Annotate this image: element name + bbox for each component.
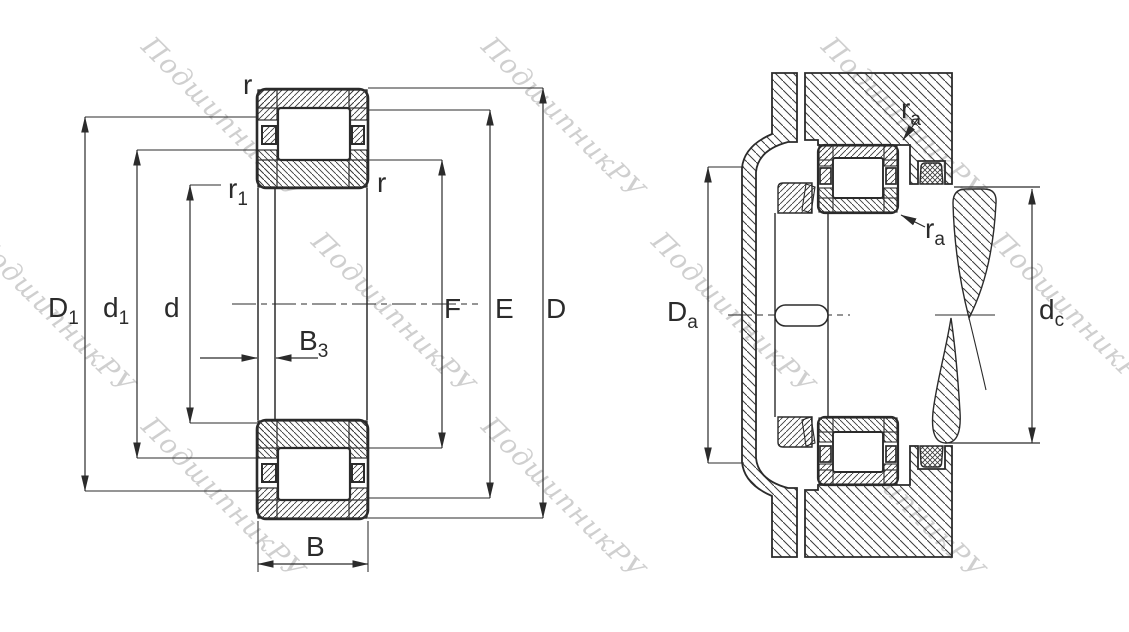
seal-ring-lower — [920, 446, 943, 467]
outer-ring-left-flange — [258, 488, 277, 518]
watermark-text: ПодшипникРУ — [474, 30, 651, 207]
outer-ring-right-flange — [349, 488, 367, 518]
watermark-text: ПодшипникРУ — [474, 410, 651, 587]
label-abutment-Da: Da — [667, 296, 698, 333]
inner-ring-right-flange — [349, 421, 367, 458]
label-diameter-D: D — [546, 293, 566, 324]
label-fillet-ra-bottom: ra — [925, 213, 945, 250]
mounted-bearing-top-section — [818, 145, 898, 213]
inner-ring-left-flange — [258, 421, 277, 458]
inner-ring-left-flange — [258, 150, 277, 187]
seal-ring-upper — [920, 163, 943, 184]
bearing-drawing-svg: ПодшипникРУ ПодшипникРУ ПодшипникРУ Подш… — [0, 0, 1129, 632]
roller — [278, 448, 350, 500]
left-figure-bearing-section: r r1 r D1 d1 d B3 B F E D — [48, 69, 566, 572]
label-width-B: B — [306, 531, 325, 562]
cage-bar-right — [886, 446, 896, 462]
cage-bar-right — [886, 168, 896, 184]
label-bore-d: d — [164, 292, 180, 323]
shaft-break-upper-leaf — [953, 189, 996, 318]
shaft-center-capsule — [775, 305, 828, 326]
technical-drawing-page: ПодшипникРУ ПодшипникРУ ПодшипникРУ Подш… — [0, 0, 1129, 632]
roller — [833, 158, 883, 198]
shaft-break-lower-leaf — [933, 318, 961, 443]
roller — [833, 432, 883, 472]
cage-bar-right — [352, 464, 364, 482]
inner-ring-right-flange — [349, 150, 367, 187]
label-diameter-d1: d1 — [103, 292, 129, 329]
label-diameter-F: F — [444, 293, 461, 324]
leader-ra-bottom — [901, 215, 925, 227]
label-diameter-E: E — [495, 293, 514, 324]
label-width-B3: B3 — [299, 325, 328, 362]
outer-ring-left-flange — [258, 90, 277, 120]
outer-ring-right-flange — [349, 90, 367, 120]
bearing-top-section — [257, 89, 368, 188]
cage-bar-left — [820, 446, 831, 462]
label-chamfer-r-inner: r — [377, 167, 386, 198]
shaft-break-curve — [969, 318, 986, 390]
cage-bar-right — [352, 126, 364, 144]
roller — [278, 108, 350, 160]
cage-bar-left — [262, 464, 276, 482]
mounted-bearing-bottom-section — [818, 417, 898, 485]
bearing-bottom-section — [257, 420, 368, 519]
cage-bar-left — [820, 168, 831, 184]
label-chamfer-r1: r1 — [228, 173, 248, 210]
cage-bar-left — [262, 126, 276, 144]
label-chamfer-r-top: r — [243, 69, 252, 100]
